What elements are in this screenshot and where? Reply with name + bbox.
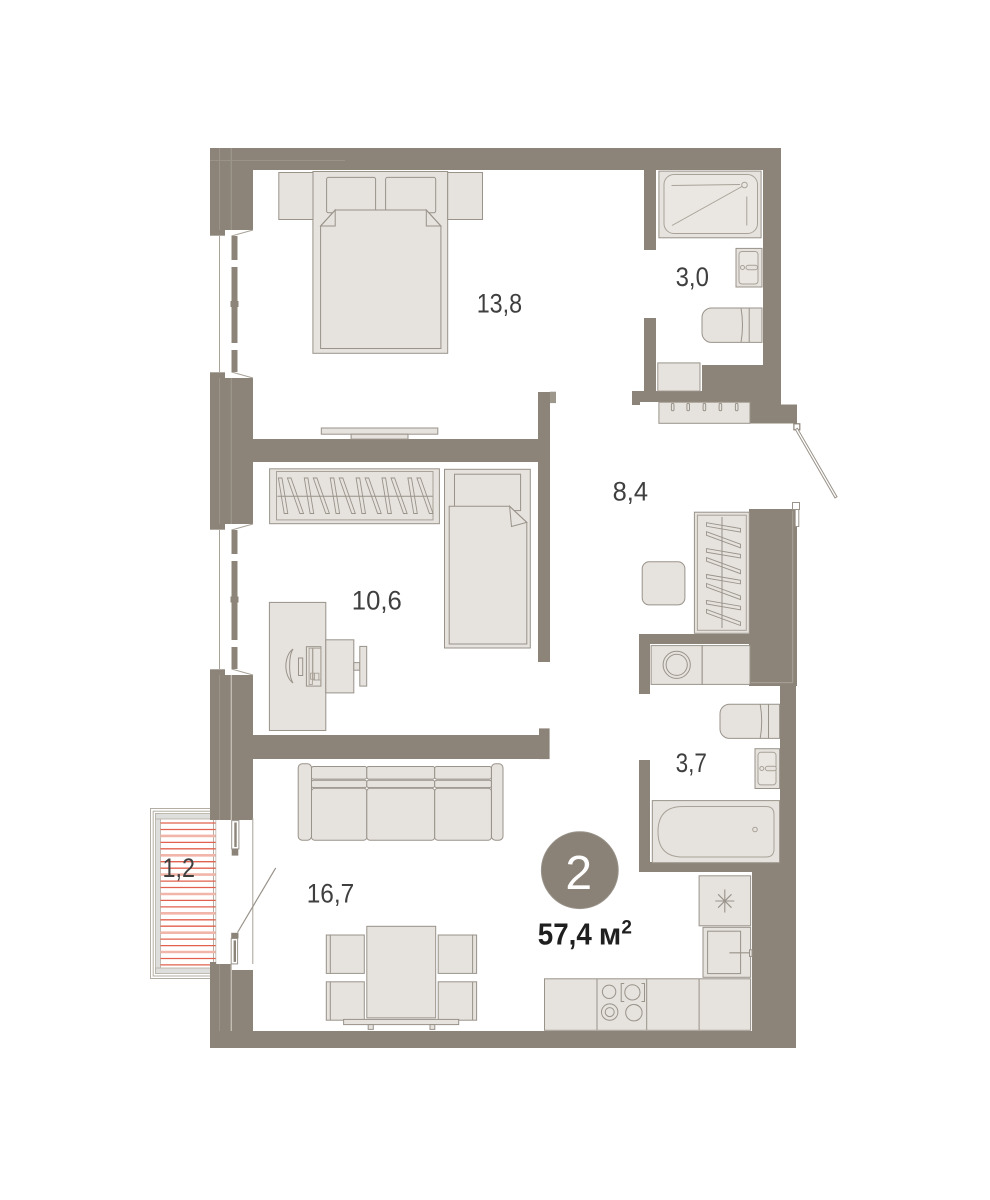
svg-text:10,6: 10,6 bbox=[352, 586, 402, 616]
svg-text:3,0: 3,0 bbox=[676, 262, 709, 292]
svg-text:16,7: 16,7 bbox=[307, 879, 355, 909]
svg-text:1,2: 1,2 bbox=[163, 853, 196, 883]
svg-text:3,7: 3,7 bbox=[676, 748, 707, 778]
svg-text:13,8: 13,8 bbox=[477, 288, 522, 318]
svg-text:8,4: 8,4 bbox=[613, 477, 648, 507]
svg-text:57,4м2: 57,4м2 bbox=[538, 918, 632, 952]
svg-text:2: 2 bbox=[565, 847, 592, 900]
